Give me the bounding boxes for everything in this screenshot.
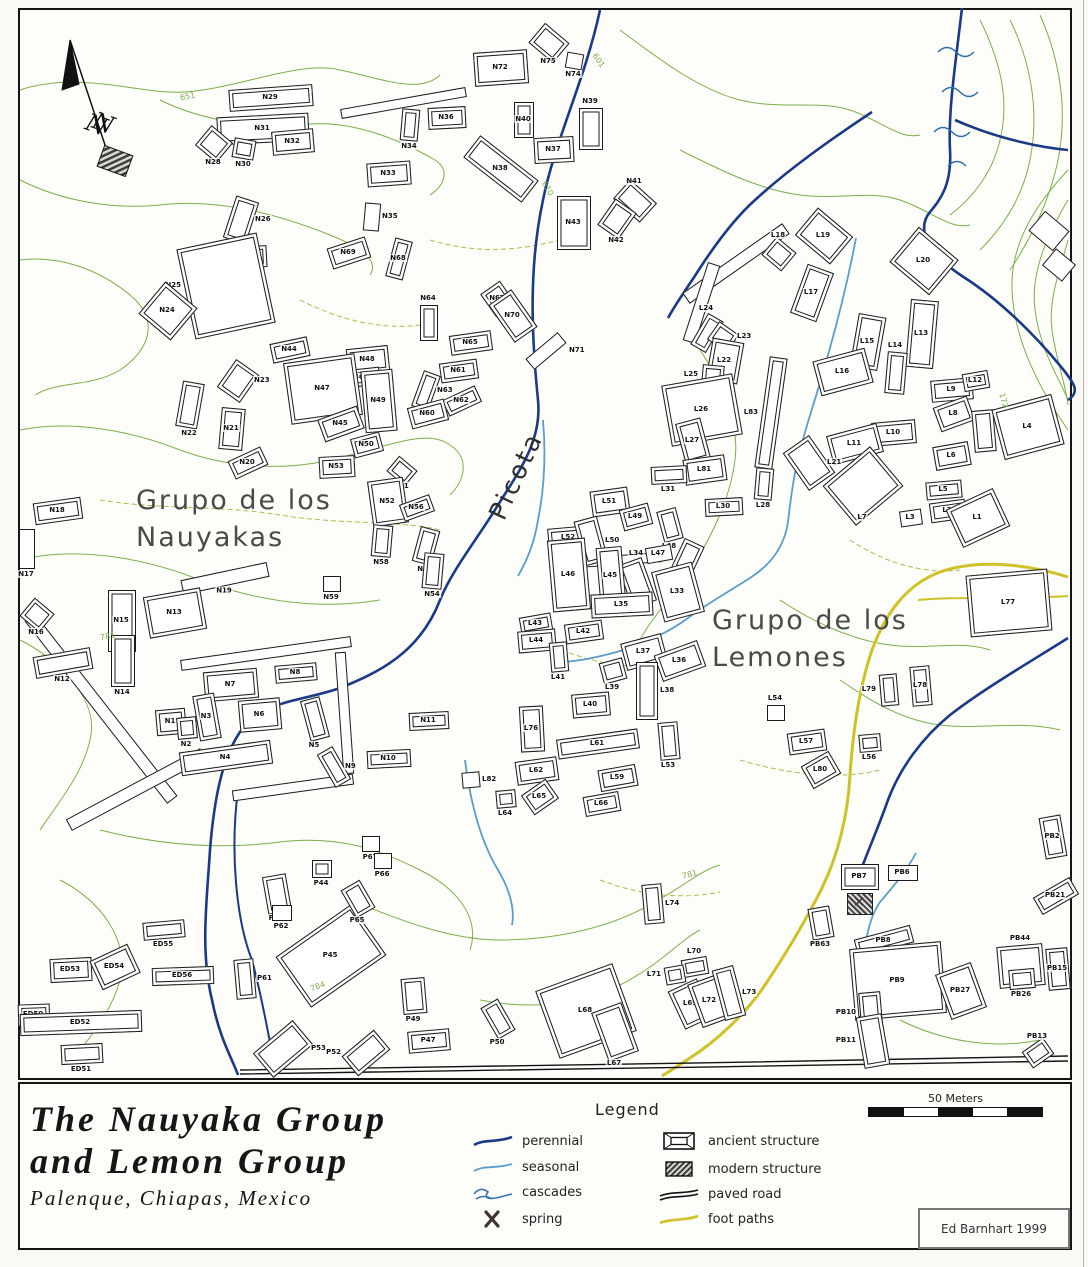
legend-label: cascades — [522, 1185, 582, 1200]
structure-label: L57 — [798, 737, 814, 745]
structure-label: N70 — [503, 311, 521, 319]
structure-outline — [884, 351, 908, 395]
structure-label: L77 — [1000, 598, 1016, 606]
ancient-structure-icon — [658, 1131, 700, 1151]
structure-label: L82 — [481, 775, 497, 783]
structure-outline — [61, 1043, 104, 1065]
structure-outline — [312, 860, 332, 878]
structure-label: L78 — [912, 681, 928, 689]
structure-label: N17 — [17, 570, 35, 578]
structure-label: PB44 — [1009, 934, 1031, 942]
modern-structure-icon — [658, 1159, 700, 1179]
structure-label: L12 — [967, 376, 983, 384]
structure-label: N50 — [357, 440, 375, 448]
credit-text: Ed Barnhart 1999 — [941, 1222, 1047, 1236]
structure-outline — [657, 721, 680, 761]
structure-label: N1 — [164, 717, 177, 725]
structure-label: N61 — [449, 366, 467, 374]
structure-label: L18 — [770, 231, 786, 239]
legend-item-seasonal: seasonal — [472, 1156, 579, 1178]
structure-label: L67 — [606, 1059, 622, 1067]
structure-label: L43 — [527, 619, 543, 627]
structure-outline — [858, 733, 881, 753]
structure-label: ED51 — [70, 1065, 92, 1073]
structure-label: N48 — [358, 355, 376, 363]
structure-label: L23 — [736, 332, 752, 340]
structure-label: N49 — [369, 396, 387, 404]
structure-outline — [363, 202, 381, 231]
structure-label: N68 — [389, 254, 407, 262]
legend-item-paved-road: paved road — [658, 1183, 782, 1205]
structure-label: P52 — [325, 1048, 342, 1056]
structure-outline — [176, 716, 198, 740]
structure-label: L44 — [528, 636, 544, 644]
structure-outline — [879, 673, 900, 706]
structure-label: N42 — [607, 236, 625, 244]
structure-label: N8 — [289, 668, 302, 676]
foot-paths-icon — [658, 1209, 700, 1229]
structure-label: L17 — [803, 288, 819, 296]
structure-outline — [323, 576, 341, 592]
structure-label: N52 — [378, 497, 396, 505]
structure-label: L15 — [859, 337, 875, 345]
structure-outline — [549, 641, 570, 672]
structure-label: PB8 — [874, 936, 891, 944]
structure-outline — [767, 705, 785, 721]
structure-label: L10 — [885, 428, 901, 436]
structure-label: L49 — [627, 512, 643, 520]
structure-label: N59 — [322, 593, 340, 601]
structure-label: N75 — [539, 57, 557, 65]
structure-label: N23 — [253, 376, 271, 384]
structure-label: L54 — [767, 694, 783, 702]
structure-outline — [400, 977, 427, 1015]
structure-label: L56 — [861, 753, 877, 761]
legend-label: paved road — [708, 1187, 782, 1202]
structure-label: N44 — [280, 345, 298, 353]
structure-label: N7 — [224, 680, 237, 688]
structure-outline — [420, 305, 438, 341]
structure-label: PB63 — [809, 940, 831, 948]
legend-label: seasonal — [522, 1160, 579, 1175]
structure-label: ED52 — [69, 1018, 91, 1026]
group-label-nauyakas: Grupo de losNauyakas — [136, 482, 332, 556]
structure-label: ED53 — [59, 965, 81, 973]
structure-label: L24 — [698, 304, 714, 312]
structure-label: L79 — [861, 685, 877, 693]
structure-label: N65 — [461, 338, 479, 346]
structure-outline — [636, 662, 658, 720]
structure-label: L20 — [915, 256, 931, 264]
structure-label: L36 — [671, 656, 687, 664]
structure-label: N33 — [379, 169, 397, 177]
legend-label: foot paths — [708, 1212, 774, 1227]
structure-label: N62 — [452, 396, 470, 404]
structure-label: L53 — [660, 761, 676, 769]
structure-label: P44 — [313, 879, 330, 887]
structure-label: L13 — [913, 329, 929, 337]
structure-label: P66 — [374, 870, 391, 878]
structure-label: N22 — [180, 429, 198, 437]
structure-label: P49 — [405, 1015, 422, 1023]
structure-label: N11 — [419, 716, 437, 724]
structure-label: L72 — [701, 996, 717, 1004]
structure-label: N64 — [419, 294, 437, 302]
structure-label: L7 — [856, 513, 867, 521]
structure-label: L31 — [660, 485, 676, 493]
structure-label: L41 — [550, 673, 566, 681]
scale-label: 50 Meters — [868, 1092, 1043, 1105]
structure-outline — [461, 771, 480, 789]
structure-outline — [754, 467, 775, 500]
structure-label: PB13 — [1026, 1032, 1048, 1040]
structure-label: L9 — [945, 385, 956, 393]
structure-outline — [579, 108, 603, 150]
structure-label: L5 — [937, 485, 948, 493]
structure-label: N34 — [400, 142, 418, 150]
structure-label: P47 — [420, 1036, 437, 1044]
map-title-line1: The Nauyaka Group — [30, 1098, 387, 1140]
structure-label: N54 — [423, 590, 441, 598]
structure-label: ED56 — [171, 971, 193, 979]
structure-label: L16 — [834, 367, 850, 375]
structure-label: N14 — [113, 688, 131, 696]
structure-outline — [421, 552, 444, 590]
structure-label: P65 — [349, 916, 366, 924]
legend-label: ancient structure — [708, 1134, 819, 1149]
structure-label: PB9 — [888, 976, 905, 984]
structure-label: N43 — [564, 218, 582, 226]
legend-item-cascades: cascades — [472, 1181, 582, 1203]
structure-label: L27 — [684, 436, 700, 444]
structure-label: N21 — [222, 424, 240, 432]
structure-label: N30 — [234, 160, 252, 168]
structure-label: L45 — [602, 571, 618, 579]
scan-page-edge — [1083, 0, 1084, 1267]
structure-label: L47 — [650, 549, 666, 557]
structure-label: N31 — [253, 124, 271, 132]
structure-label: N28 — [204, 158, 222, 166]
group-label-lemones: Grupo de losLemones — [712, 602, 908, 676]
structure-label: L30 — [715, 502, 731, 510]
structure-label: N20 — [238, 458, 256, 466]
structure-label: L28 — [755, 501, 771, 509]
structure-label: N10 — [379, 754, 397, 762]
structure-label: N63 — [436, 386, 454, 394]
legend-item-modern-structure: modern structure — [658, 1158, 821, 1180]
structure-label: L46 — [560, 570, 576, 578]
structure-label: N15 — [112, 616, 130, 624]
structure-label: L39 — [604, 683, 620, 691]
structure-label: L26 — [693, 405, 709, 413]
structure-label: L4 — [1021, 422, 1032, 430]
structure-label: L59 — [609, 773, 625, 781]
structure-label: L80 — [812, 765, 828, 773]
structure-label: L62 — [528, 766, 544, 774]
map-page: { "title_block": { "title_line1": "The N… — [0, 0, 1088, 1267]
seasonal-line-icon — [472, 1157, 514, 1177]
structure-label: L61 — [589, 739, 605, 747]
structure-label: L64 — [497, 809, 513, 817]
title-block: The Nauyaka Group and Lemon Group Palenq… — [30, 1098, 387, 1211]
structure-label: L8 — [947, 409, 958, 417]
structure-outline — [362, 836, 380, 852]
structure-label: L81 — [696, 465, 712, 473]
structure-label: N29 — [261, 93, 279, 101]
legend-item-ancient-structure: ancient structure — [658, 1130, 819, 1152]
structure-label: ED54 — [103, 962, 125, 970]
structure-outline — [495, 789, 516, 809]
paved-road-icon — [658, 1184, 700, 1204]
structure-label: L83 — [743, 408, 759, 416]
structure-outline — [233, 958, 256, 1000]
structure-outline — [400, 108, 421, 141]
structure-label: N3 — [200, 712, 213, 720]
structure-label: PB10 — [835, 1008, 857, 1016]
legend-item-foot-paths: foot paths — [658, 1208, 774, 1230]
structure-label: L71 — [646, 970, 662, 978]
structure-label: N56 — [407, 503, 425, 511]
structure-outline — [564, 52, 584, 71]
structure-label: PB6 — [893, 868, 910, 876]
structure-label: N2 — [180, 740, 193, 748]
structure-label: N41 — [625, 177, 643, 185]
structure-label: L37 — [635, 647, 651, 655]
structure-label: P62 — [273, 922, 290, 930]
structure-label: L34 — [628, 549, 644, 557]
map-title-line2: and Lemon Group — [30, 1140, 387, 1182]
legend-title: Legend — [595, 1100, 660, 1119]
structure-outline — [1008, 968, 1036, 990]
structure-label: P50 — [489, 1038, 506, 1046]
structure-label: L74 — [664, 899, 680, 907]
structure-label: N39 — [581, 97, 599, 105]
structure-label: N5 — [308, 741, 321, 749]
scale-bar-segments — [868, 1107, 1043, 1117]
structure-label: ED55 — [152, 940, 174, 948]
structure-label: L70 — [686, 947, 702, 955]
structure-label: L66 — [593, 799, 609, 807]
structure-label: N16 — [27, 628, 45, 636]
structure-label: N69 — [339, 248, 357, 256]
structure-label: L40 — [582, 700, 598, 708]
structure-label: L42 — [575, 627, 591, 635]
structure-outline — [641, 883, 664, 925]
structure-outline — [19, 529, 35, 569]
spring-icon — [472, 1209, 514, 1229]
structure-label: N4 — [219, 753, 232, 761]
structure-label: L33 — [669, 587, 685, 595]
structure-label: N12 — [53, 675, 71, 683]
structure-label: N58 — [372, 558, 390, 566]
structure-label: L3 — [904, 513, 915, 521]
structure-label: N47 — [313, 384, 331, 392]
structure-label: L11 — [846, 439, 862, 447]
structure-label: L1 — [971, 513, 982, 521]
structure-label: L14 — [887, 341, 903, 349]
structure-outline — [111, 635, 135, 687]
structure-label: N74 — [564, 70, 582, 78]
structure-label: L76 — [523, 724, 539, 732]
legend-item-perennial: perennial — [472, 1130, 583, 1152]
structure-label: PB7 — [850, 872, 867, 880]
structure-label: PB15 — [1046, 964, 1068, 972]
structure-outline — [142, 919, 185, 941]
structure-label: N53 — [327, 462, 345, 470]
perennial-line-icon — [472, 1131, 514, 1151]
structure-label: N13 — [165, 608, 183, 616]
structure-label: N71 — [568, 346, 586, 354]
structure-label: N40 — [514, 115, 532, 123]
structure-label: PB11 — [835, 1036, 857, 1044]
structure-outline — [272, 905, 292, 921]
structure-label: L6 — [945, 451, 956, 459]
structure-label: L51 — [601, 497, 617, 505]
structure-label: L21 — [826, 458, 842, 466]
structure-outline — [231, 137, 256, 161]
structure-label: P61 — [256, 974, 273, 982]
structure-outline — [371, 524, 394, 558]
structure-label: L50 — [604, 536, 620, 544]
structure-label: L65 — [531, 792, 547, 800]
legend-item-spring: spring — [472, 1208, 562, 1230]
structure-label: N18 — [48, 506, 66, 514]
map-subtitle: Palenque, Chiapas, Mexico — [30, 1186, 387, 1211]
structure-label: N32 — [283, 137, 301, 145]
structure-outline — [664, 964, 687, 985]
structure-label: N36 — [437, 113, 455, 121]
structure-label: L35 — [613, 600, 629, 608]
structure-label: N24 — [158, 306, 176, 314]
structure-label: N37 — [544, 145, 562, 153]
structure-label: N38 — [491, 164, 509, 172]
structure-label: P45 — [322, 951, 339, 959]
structure-label: L38 — [659, 686, 675, 694]
credit-box: Ed Barnhart 1999 — [918, 1208, 1070, 1249]
scale-bar: 50 Meters — [868, 1092, 1043, 1117]
structure-label: N60 — [418, 409, 436, 417]
structure-label: L22 — [716, 356, 732, 364]
legend-label: perennial — [522, 1134, 583, 1149]
legend-label: modern structure — [708, 1162, 821, 1177]
structure-outline — [374, 853, 392, 869]
structure-label: L25 — [683, 370, 699, 378]
spring-marker: ✕ — [853, 893, 866, 911]
structure-label: N6 — [253, 710, 266, 718]
cascades-icon — [472, 1182, 514, 1202]
structure-label: PB2 — [1043, 832, 1060, 840]
structure-label: N45 — [331, 419, 349, 427]
structure-label: N72 — [491, 63, 509, 71]
structure-outline — [651, 465, 688, 485]
structure-label: N26 — [254, 215, 272, 223]
structure-label: N35 — [381, 212, 399, 220]
structure-label: N9 — [344, 762, 357, 770]
structure-label: PB21 — [1044, 891, 1066, 899]
structure-label: PB27 — [949, 986, 971, 994]
structure-label: N19 — [215, 587, 233, 595]
structure-label: L73 — [741, 988, 757, 996]
structure-label: L19 — [815, 231, 831, 239]
structure-label: PB26 — [1010, 990, 1032, 998]
legend-label: spring — [522, 1212, 562, 1227]
